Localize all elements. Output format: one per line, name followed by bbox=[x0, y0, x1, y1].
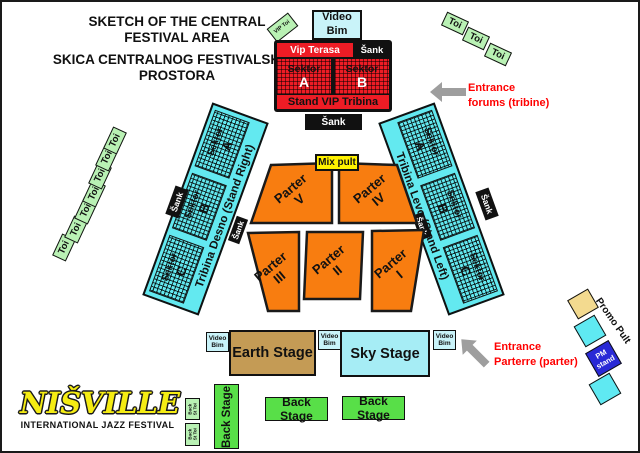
video-screen-left: Video Bim bbox=[206, 332, 229, 352]
entrance-parterre-line2: Parterre (parter) bbox=[494, 355, 578, 370]
mixing-desk-box: Mix pult bbox=[315, 154, 359, 171]
logo-subtitle: INTERNATIONAL JAZZ FESTIVAL bbox=[20, 420, 175, 430]
backstage-toilet-2-label: Back St Toi bbox=[187, 428, 197, 441]
back-stage-2: Back Stage bbox=[342, 396, 405, 420]
back-stage-vertical-label: Back Stage bbox=[221, 385, 233, 447]
backstage-toilet-1: Back St Toi bbox=[185, 398, 200, 420]
festival-logo: NIŠVILLE INTERNATIONAL JAZZ FESTIVAL bbox=[20, 388, 175, 430]
backstage-toilet-2: Back St Toi bbox=[185, 423, 200, 446]
video-screen-middle: Video Bim bbox=[318, 330, 341, 350]
sky-stage: Sky Stage bbox=[340, 330, 430, 377]
logo-name: NIŠVILLE bbox=[20, 388, 175, 420]
back-stage-1: Back Stage bbox=[265, 397, 328, 421]
entrance-parterre-text: Entrance Parterre (parter) bbox=[494, 340, 578, 370]
back-stage-vertical: Back Stage bbox=[214, 384, 239, 449]
video-screen-right: Video Bim bbox=[433, 330, 456, 350]
earth-stage: Earth Stage bbox=[229, 330, 316, 376]
festival-map-canvas: SKETCH OF THE CENTRAL FESTIVAL AREA SKIC… bbox=[0, 0, 640, 453]
entrance-parterre-line1: Entrance bbox=[494, 340, 578, 355]
backstage-toilet-1-label: Back St Toi bbox=[187, 403, 197, 416]
